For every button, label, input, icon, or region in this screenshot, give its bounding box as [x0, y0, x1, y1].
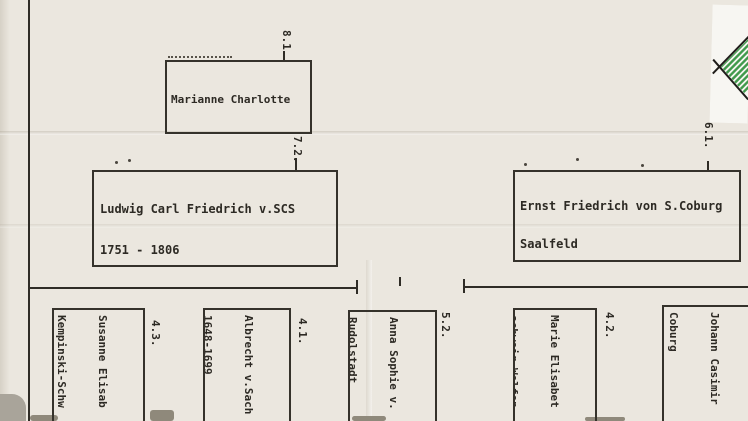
scan-speck: [524, 163, 527, 166]
scan-dotted-mark: [168, 56, 232, 58]
person-name: schweig-Wolfen: [513, 315, 521, 421]
person-name: Marie Elisabet: [548, 315, 562, 421]
person-name: Ernst Friedrich von S.Coburg: [520, 200, 734, 213]
person-name: Susanne Elisab: [96, 315, 110, 421]
scanned-genealogy-chart: 8.1. 7.2. 6.1. 4.3. 4.1. 5.2. 4.2. Maria…: [0, 0, 748, 421]
person-name: Albrecht v.Sach: [242, 315, 256, 421]
person-name: Rudolstadt: [348, 317, 360, 421]
person-name: Johann Casimir: [708, 312, 722, 421]
connector-label-4-1: 4.1.: [296, 318, 309, 345]
scan-speck: [115, 161, 118, 164]
person-box-marianne: Marianne Charlotte 1788-1794 v.SCS 5.Toc…: [165, 60, 312, 134]
generation-rail-right: [464, 286, 748, 288]
person-dates: 1648-1699: [203, 315, 215, 421]
person-name: Kempinski-Schw: [55, 315, 69, 421]
scan-speck: [641, 164, 644, 167]
scan-speck: [576, 158, 579, 161]
connector-label-4-2: 4.2.: [603, 312, 616, 339]
person-box-albrecht: Albrecht v.Sach 1648-1699 reg.1680-1699 …: [203, 308, 291, 421]
person-box-ludwig: Ludwig Carl Friedrich v.SCS 1751 - 1806 …: [92, 170, 338, 267]
connector-label-5-2: 5.2.: [439, 312, 452, 339]
rotated-text-block: Albrecht v.Sach 1648-1699 reg.1680-1699 …: [203, 315, 282, 421]
rail-end-tick: [356, 280, 358, 294]
generation-rail-left: [28, 287, 357, 289]
paper-left-edge-shadow: [0, 0, 10, 421]
person-name: Ludwig Carl Friedrich v.SCS: [100, 203, 330, 217]
person-dates: 1751 - 1806: [100, 244, 330, 258]
scan-speck: [128, 159, 131, 162]
person-box-johann: Johann Casimir Coburg 1564 -1633 reg. (1…: [662, 305, 748, 421]
green-diamond-icon: [710, 5, 748, 124]
person-name: Coburg: [667, 312, 681, 421]
person-name: Saalfeld: [520, 238, 734, 251]
rotated-text-block: Marie Elisabet schweig-Wolfen 1638-1687 …: [513, 315, 588, 421]
person-name: Anna Sophie v.: [387, 317, 401, 421]
rotated-text-block: Susanne Elisab Kempinski-Schw Reichsgräf…: [52, 315, 136, 421]
connector-label-4-3: 4.3.: [149, 320, 162, 347]
rail-gap-dash: [399, 277, 401, 286]
person-name: Marianne Charlotte: [171, 93, 306, 107]
ancestor-vertical-line: [28, 0, 30, 421]
rotated-text-block: Anna Sophie v. Rudolstadt 1700-1780 verh…: [348, 317, 427, 421]
paper-crease-horizontal-upper: [0, 131, 748, 135]
connector-label-7-2: 7.2.: [291, 136, 304, 163]
scan-artifact: [150, 410, 174, 421]
rotated-text-block: Johann Casimir Coburg 1564 -1633 reg. (1…: [662, 312, 748, 421]
stamp-image: [709, 5, 748, 128]
person-box-ernst: Ernst Friedrich von S.Coburg Saalfeld 17…: [513, 170, 741, 262]
page-corner-shadow: [0, 394, 26, 421]
person-box-susanne: Susanne Elisab Kempinski-Schw Reichsgräf…: [52, 308, 145, 421]
person-box-anna: Anna Sophie v. Rudolstadt 1700-1780 verh…: [348, 310, 437, 421]
connector-label-8-1: 8.1.: [280, 30, 293, 57]
person-box-marie: Marie Elisabet schweig-Wolfen 1638-1687 …: [513, 308, 597, 421]
